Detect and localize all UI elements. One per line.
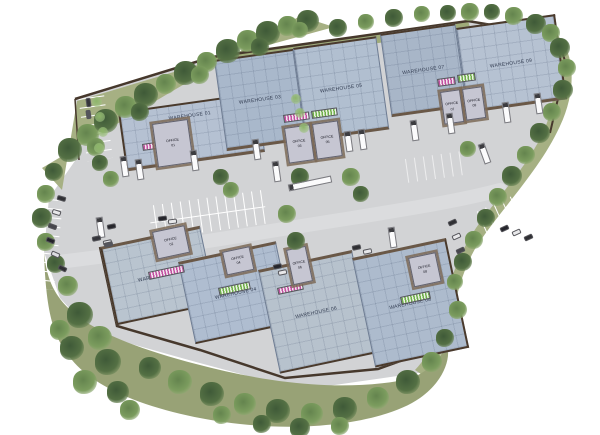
tree-icon [278,205,296,223]
tree-icon [287,232,305,250]
bush-icon [94,143,104,153]
truck-icon [252,139,262,161]
tree-icon [213,406,231,424]
tree-icon [550,38,570,58]
tree-icon [60,336,84,360]
tree-icon [505,7,523,25]
tree-icon [58,276,78,296]
tree-icon [131,103,149,121]
car-icon [107,223,117,230]
car-icon [499,224,509,232]
tree-icon [489,188,507,206]
tree-icon [543,103,561,121]
tree-icon [191,66,209,84]
tree-icon [156,74,176,94]
tree-icon [353,186,369,202]
car-icon [85,98,91,108]
tree-icon [73,370,97,394]
tree-icon [385,9,403,27]
bush-icon [299,123,309,133]
tree-icon [290,418,310,435]
tree-icon [88,326,112,350]
car-icon [511,228,521,236]
truck-icon [358,129,368,151]
car-icon [451,232,461,240]
truck-icon [410,120,420,142]
tree-icon [168,370,192,394]
car-icon [363,248,373,255]
truck-icon [120,156,130,178]
truck-icon [190,150,200,172]
tree-icon [440,5,456,21]
car-icon [158,215,168,221]
tree-icon [292,22,308,38]
tree-icon [358,14,374,30]
tree-icon [517,146,535,164]
tree-icon [460,141,476,157]
truck-icon [272,161,282,183]
bush-icon [98,127,108,137]
tree-icon [558,59,576,77]
tree-icon [436,329,454,347]
truck-icon [478,142,492,164]
truck-icon [344,131,354,153]
tree-icon [331,417,349,435]
bush-icon [92,97,102,107]
tree-icon [461,3,479,21]
tree-icon [253,415,271,433]
tree-icon [553,80,573,100]
tree-icon [234,393,256,415]
tree-icon [449,301,467,319]
bush-icon [95,112,105,122]
car-icon [168,218,178,224]
truck-icon [135,159,145,181]
tree-icon [502,166,522,186]
truck-icon [534,93,544,115]
car-icon [104,241,114,248]
car-icon [523,233,533,241]
tree-icon [422,352,442,372]
tree-icon [45,163,63,181]
tree-icon [251,38,269,56]
tree-icon [465,231,483,249]
tree-icon [67,302,93,328]
tree-icon [103,171,119,187]
car-icon [92,235,102,242]
car-icon [278,269,288,276]
car-icon [85,110,91,120]
tree-icon [92,155,108,171]
tree-icon [447,274,463,290]
tree-icon [396,370,420,394]
truck-icon [502,102,512,124]
tree-icon [329,19,347,37]
truck-icon [388,227,398,249]
car-icon [47,223,57,231]
tree-icon [484,4,500,20]
car-icon [51,209,61,217]
tree-icon [367,387,389,409]
car-icon [273,263,283,270]
tree-icon [342,168,360,186]
tree-icon [477,209,495,227]
landscape-vehicles-layer [0,0,600,435]
tree-icon [37,185,55,203]
truck-icon [446,113,456,135]
car-icon [57,195,67,202]
tree-icon [454,253,472,271]
car-icon [447,218,457,226]
tree-icon [414,6,430,22]
tree-icon [223,182,239,198]
tree-icon [530,123,550,143]
tree-icon [95,349,121,375]
tree-icon [120,400,140,420]
bush-icon [291,94,301,104]
tree-icon [200,382,224,406]
site-plan: WAREHOUSE 01 WAREHOUSE 03 WAREHOUSE 05 W… [0,0,600,435]
bush-icon [295,108,305,118]
tree-icon [139,357,161,379]
car-icon [352,244,362,251]
